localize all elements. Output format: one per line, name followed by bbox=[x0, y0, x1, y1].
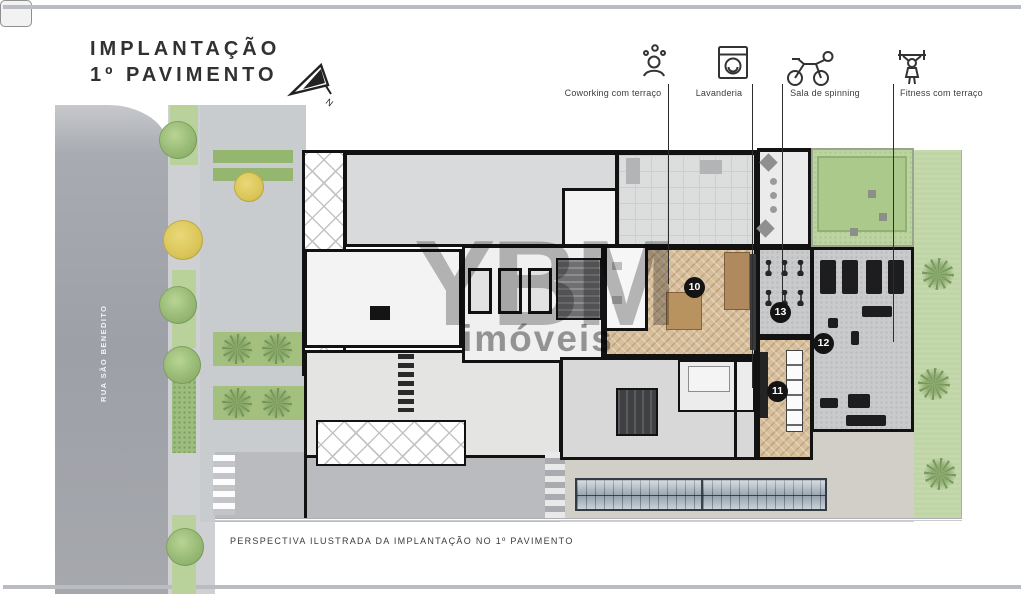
legend-label-coworking: Coworking com terraço bbox=[562, 88, 664, 98]
laundry-counter bbox=[760, 352, 768, 418]
treadmill bbox=[888, 260, 904, 294]
coworking-counter bbox=[750, 254, 756, 350]
street-tree bbox=[159, 286, 197, 324]
gym-bench bbox=[820, 398, 838, 408]
terrace-planter bbox=[626, 158, 640, 184]
page-title-line2: 1º PAVIMENTO bbox=[90, 62, 280, 88]
page-title: IMPLANTAÇÃO 1º PAVIMENTO bbox=[90, 36, 280, 88]
yellow-tree bbox=[234, 172, 264, 202]
gym-equipment bbox=[828, 318, 838, 328]
marker-coworking: 10 bbox=[684, 277, 705, 298]
palm-tree bbox=[922, 258, 954, 290]
leader-line-fitness bbox=[893, 84, 894, 342]
north-arrow-icon: N bbox=[285, 58, 335, 110]
spin-bike bbox=[795, 290, 806, 306]
interior-wall bbox=[734, 357, 737, 460]
palm-tree bbox=[262, 388, 292, 418]
caption: PERSPECTIVA ILUSTRADA DA IMPLANTAÇÃO NO … bbox=[230, 536, 574, 546]
treadmill bbox=[866, 260, 882, 294]
garden-bench bbox=[868, 190, 876, 198]
coworking-long-table bbox=[724, 252, 750, 310]
dumbbell-rack bbox=[862, 306, 892, 317]
leader-line-spinning bbox=[782, 84, 783, 310]
car bbox=[0, 0, 32, 27]
equipment-box bbox=[370, 306, 390, 320]
louver-element bbox=[398, 354, 414, 412]
site-boundary-line bbox=[215, 518, 962, 521]
palm-tree bbox=[222, 334, 252, 364]
daybed bbox=[688, 366, 730, 392]
hedge-strip bbox=[172, 375, 196, 453]
leader-line-coworking bbox=[668, 84, 669, 284]
street-tree bbox=[166, 528, 204, 566]
gym-equipment bbox=[848, 394, 870, 408]
palm-tree bbox=[924, 458, 956, 490]
treadmill bbox=[820, 260, 836, 294]
washer-dryer-stack bbox=[786, 350, 803, 432]
pedestrian-path bbox=[213, 455, 235, 515]
stepping-stone bbox=[770, 192, 777, 199]
palm-tree bbox=[222, 388, 252, 418]
washing-machine-icon bbox=[716, 44, 750, 81]
ramp-down bbox=[304, 458, 562, 520]
marker-fitness: 12 bbox=[813, 333, 834, 354]
service-stair bbox=[616, 388, 658, 436]
watermark-subtitle: imóveis bbox=[462, 318, 614, 360]
stepping-stone bbox=[770, 206, 777, 213]
floorplan-page: IMPLANTAÇÃO 1º PAVIMENTO N Coworking com… bbox=[0, 0, 1024, 594]
coworking-people-icon bbox=[636, 42, 672, 80]
stepping-stone bbox=[770, 178, 777, 185]
garden-bench bbox=[879, 213, 887, 221]
spin-bike bbox=[795, 260, 806, 276]
glass-skylight bbox=[575, 478, 827, 511]
street-tree bbox=[159, 121, 197, 159]
palm-tree bbox=[262, 334, 292, 364]
hatched-walkway bbox=[545, 452, 565, 520]
hedge-row bbox=[213, 150, 293, 163]
spin-bike bbox=[763, 260, 774, 276]
street-tree bbox=[163, 346, 201, 384]
gym-equipment bbox=[846, 415, 886, 426]
street-rua-sao-benedito bbox=[55, 105, 168, 594]
legend-label-lavanderia: Lavanderia bbox=[690, 88, 748, 98]
yellow-tree bbox=[163, 220, 203, 260]
spinning-bike-icon bbox=[784, 48, 838, 88]
legend-label-fitness: Fitness com terraço bbox=[900, 88, 986, 98]
treadmill bbox=[842, 260, 858, 294]
legend-label-spinning: Sala de spinning bbox=[790, 88, 860, 98]
trellis-band bbox=[316, 420, 466, 466]
marker-lavanderia: 11 bbox=[767, 381, 788, 402]
spin-bike bbox=[763, 290, 774, 306]
page-title-line1: IMPLANTAÇÃO bbox=[90, 36, 280, 62]
palm-tree bbox=[918, 368, 950, 400]
gym-equipment bbox=[851, 331, 859, 345]
terrace-table bbox=[700, 160, 722, 174]
spin-bike bbox=[779, 260, 790, 276]
garden-bench bbox=[850, 228, 858, 236]
fitness-barbell-icon bbox=[894, 46, 930, 86]
leader-line-lavanderia bbox=[752, 84, 753, 388]
street-name-label: RUA SÃO BENEDITO bbox=[99, 292, 108, 402]
marker-spinning: 13 bbox=[770, 302, 791, 323]
north-letter: N bbox=[324, 97, 335, 109]
